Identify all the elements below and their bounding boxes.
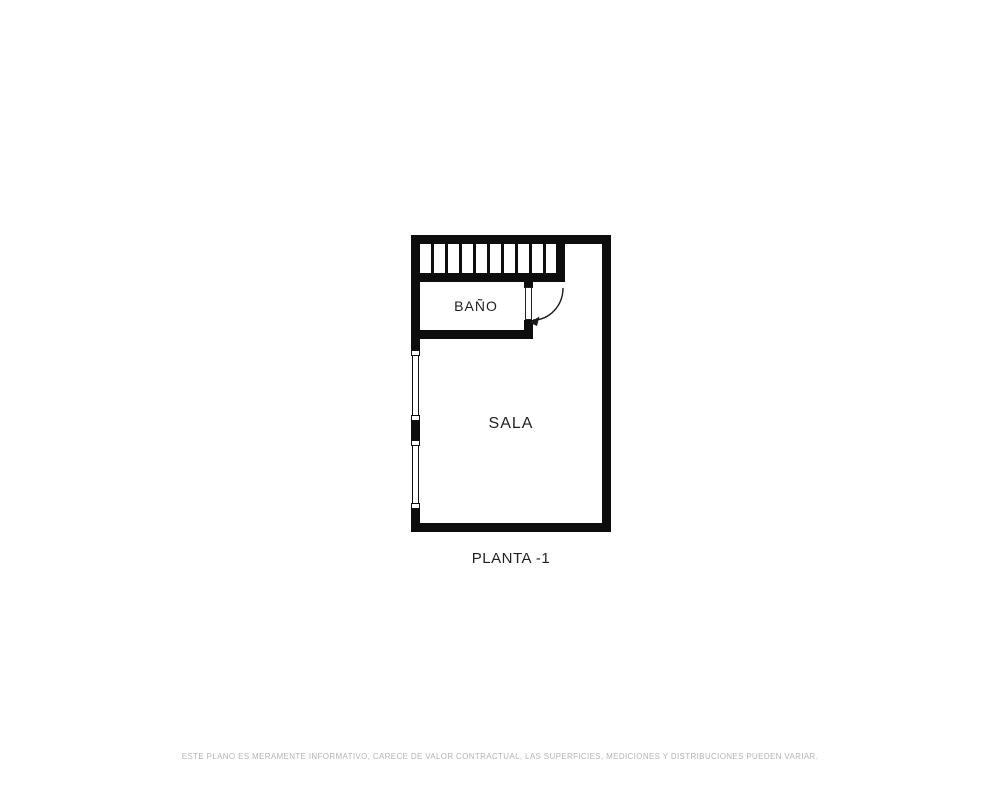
- room-label-sala: SALA: [420, 338, 602, 510]
- wall-left-lower: [411, 509, 420, 532]
- stair-tread: [476, 244, 487, 273]
- wall-bottom: [411, 523, 611, 532]
- window-cap: [411, 415, 420, 421]
- disclaimer-text: ESTE PLANO ES MERAMENTE INFORMATIVO, CAR…: [0, 752, 1000, 762]
- window-glass: [412, 356, 419, 415]
- stair-tread: [448, 244, 459, 273]
- stair-tread: [490, 244, 501, 273]
- plan-caption: PLANTA -1: [381, 550, 641, 567]
- stair-tread: [532, 244, 543, 273]
- stair-tread: [504, 244, 515, 273]
- stair-tread: [462, 244, 473, 273]
- stair-bottom-wall: [411, 273, 565, 282]
- wall-right: [602, 235, 611, 532]
- stair-tread: [434, 244, 445, 273]
- stair-right-wall: [556, 244, 565, 273]
- window-upper: [411, 350, 420, 421]
- wall-left-middle: [411, 421, 420, 440]
- window-lower: [411, 440, 420, 509]
- window-cap: [411, 503, 420, 509]
- stairs: [420, 244, 557, 273]
- window-glass: [412, 446, 419, 503]
- stair-tread: [420, 244, 431, 273]
- stair-tread: [518, 244, 529, 273]
- floor-plan-page: BAÑO SALA PLANTA -1 ESTE PLANO ES MERAME…: [0, 0, 1000, 800]
- room-label-bano: BAÑO: [420, 282, 532, 330]
- wall-top: [411, 235, 611, 244]
